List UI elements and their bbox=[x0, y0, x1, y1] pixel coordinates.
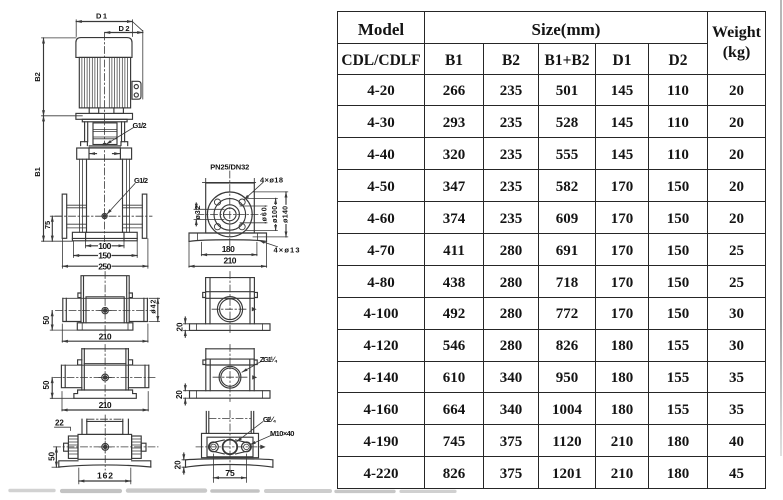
svg-text:20: 20 bbox=[175, 390, 184, 399]
svg-text:210: 210 bbox=[99, 331, 112, 341]
svg-text:B2: B2 bbox=[33, 72, 42, 82]
svg-text:210: 210 bbox=[224, 256, 237, 266]
svg-text:G1¼: G1¼ bbox=[263, 415, 276, 424]
svg-text:20: 20 bbox=[176, 322, 185, 331]
svg-text:PN25/DN32: PN25/DN32 bbox=[210, 162, 249, 171]
svg-text:250: 250 bbox=[98, 261, 111, 271]
svg-text:75: 75 bbox=[225, 468, 235, 478]
svg-text:B1: B1 bbox=[33, 167, 42, 177]
svg-text:22: 22 bbox=[55, 418, 64, 427]
svg-text:ø100: ø100 bbox=[272, 206, 279, 223]
svg-text:50: 50 bbox=[48, 451, 57, 460]
svg-text:4×ø18: 4×ø18 bbox=[260, 176, 283, 185]
svg-text:ZG1¼: ZG1¼ bbox=[260, 355, 278, 364]
svg-text:M10×40: M10×40 bbox=[270, 429, 295, 438]
svg-text:50: 50 bbox=[42, 315, 51, 324]
svg-text:180: 180 bbox=[222, 244, 235, 254]
svg-text:ø140: ø140 bbox=[282, 206, 289, 223]
svg-text:ø60: ø60 bbox=[262, 207, 269, 221]
svg-text:210: 210 bbox=[99, 400, 112, 410]
svg-text:G1/2: G1/2 bbox=[133, 121, 147, 130]
svg-text:162: 162 bbox=[97, 470, 113, 480]
svg-text:D1: D1 bbox=[96, 11, 107, 20]
svg-text:4×ø13: 4×ø13 bbox=[274, 245, 300, 254]
svg-text:150: 150 bbox=[98, 251, 111, 261]
svg-text:ø42: ø42 bbox=[151, 300, 158, 314]
svg-text:75: 75 bbox=[43, 221, 52, 229]
svg-text:50: 50 bbox=[42, 380, 51, 389]
svg-text:100: 100 bbox=[98, 241, 111, 251]
svg-text:20: 20 bbox=[174, 460, 183, 469]
svg-text:G1/2: G1/2 bbox=[134, 176, 148, 185]
svg-text:D2: D2 bbox=[119, 24, 130, 33]
svg-text:ø32: ø32 bbox=[195, 205, 202, 219]
